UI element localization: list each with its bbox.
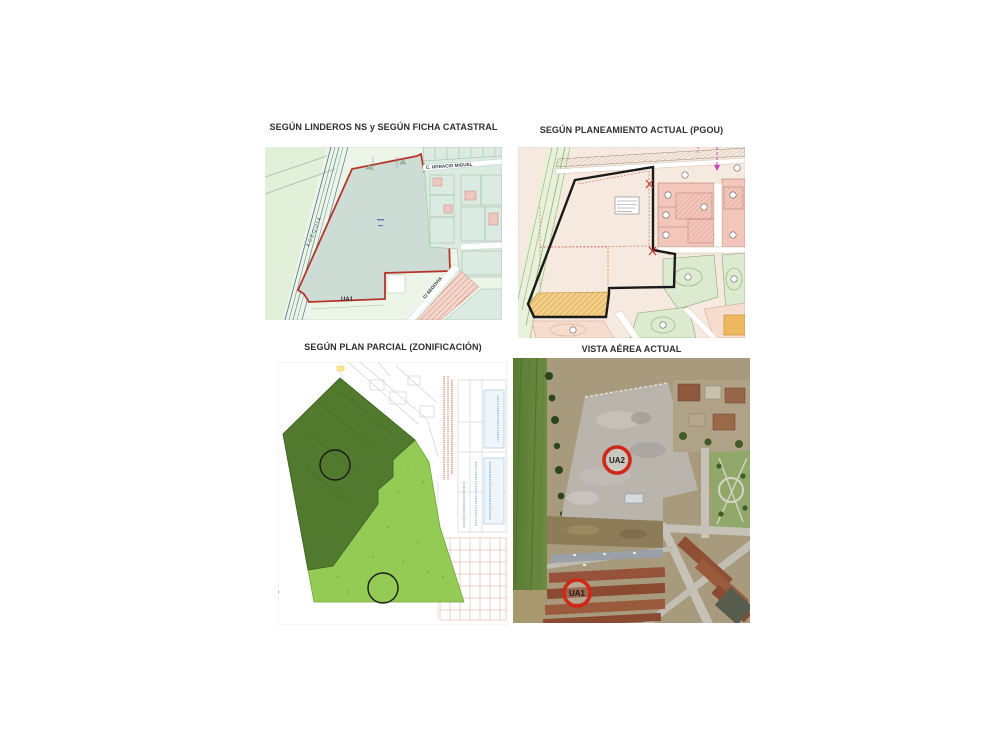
park-area [709,450,750,534]
pgou-pink-blocks [658,179,745,253]
composite-plans-sheet: SEGÚN LINDEROS NS y SEGÚN FICHA CATASTRA… [0,0,1008,736]
dirt-strip [547,516,663,548]
panel-plan-parcial-map [278,362,508,625]
zone-label-ua1: UA1 [341,297,354,303]
sketch-yellow-mark [337,366,344,371]
panel-title-plan-parcial: SEGÚN PLAN PARCIAL (ZONIFICACIÓN) [278,342,508,352]
ua1-badge: UA1 [564,580,590,606]
pgou-orange-sector [529,292,608,316]
panel-title-catastral: SEGÚN LINDEROS NS y SEGÚN FICHA CATASTRA… [265,122,502,132]
panel-catastral-map: ACEQUIA [265,147,502,320]
pgou-note-box [615,197,639,214]
panel-pgou-map [518,147,745,338]
north-buildings [673,380,750,452]
ua2-label: UA2 [609,456,626,465]
panel-aerial-photo: UA2 UA1 [513,358,750,623]
ua1-label: UA1 [569,589,586,598]
ua2-badge: UA2 [604,447,630,473]
panel-title-vista-aerea: VISTA AÉREA ACTUAL [513,344,750,354]
farmland-strip [513,358,547,623]
panel-title-pgou: SEGÚN PLANEAMIENTO ACTUAL (PGOU) [518,125,745,135]
